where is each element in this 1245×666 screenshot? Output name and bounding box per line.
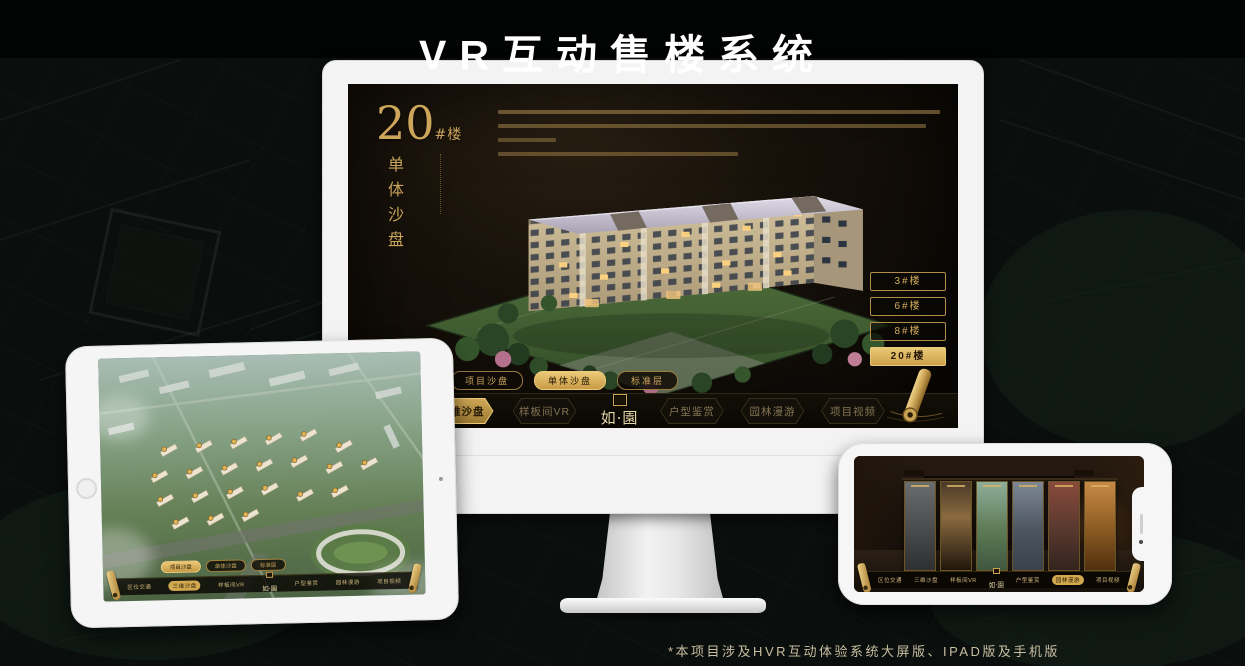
scene-panel[interactable] (1084, 481, 1116, 571)
speaker-icon (1140, 514, 1143, 534)
nav-item-garden-roam[interactable]: 园林漫游 (336, 578, 360, 587)
nav-item-project-video[interactable]: 项目视频 (377, 577, 401, 586)
monitor-stand (596, 512, 724, 602)
sub-tab-project-sandtable[interactable]: 项目沙盘 (451, 371, 523, 390)
page-title: VR互动售楼系统 (0, 27, 1245, 85)
nav-item-garden-roam[interactable]: 园林漫游 (745, 398, 799, 424)
sub-tab-single-sandtable[interactable]: 单体沙盘 (534, 371, 606, 390)
footnote-caption: *本项目涉及HVR互动体验系统大屏版、IPAD版及手机版 (668, 641, 1060, 660)
nav-item-project-video[interactable]: 项目视频 (826, 398, 880, 424)
logo-seal-icon (993, 568, 1000, 574)
floor-button-group: 3#楼 6#楼 8#楼 20#楼 (870, 266, 946, 366)
ipad-screen: 项目沙盘 单体沙盘 标准层 区位交通 三维沙盘 样板间VR 如·園 户型鉴赏 园… (98, 351, 425, 601)
screen-subtitle-vertical: 单体沙盘 (382, 156, 406, 286)
pavilion-beam (924, 456, 1074, 479)
nav-item-unit-gallery[interactable]: 户型鉴赏 (1016, 576, 1040, 584)
floor-button-6[interactable]: 6#楼 (870, 297, 946, 316)
app-logo[interactable]: 如·園 (989, 568, 1004, 592)
nav-item-project-video[interactable]: 项目视频 (1096, 576, 1120, 584)
smartphone-device: 区位交通 三维沙盘 样板间VR 如·園 户型鉴赏 园林漫游 项目视频 (838, 443, 1172, 605)
sub-tab-single-sandtable[interactable]: 单体沙盘 (206, 559, 246, 572)
floor-button-3[interactable]: 3#楼 (870, 272, 946, 291)
nav-item-unit-gallery[interactable]: 户型鉴赏 (665, 398, 719, 424)
monitor-base (560, 598, 766, 613)
nav-item-showroom-vr[interactable]: 样板间VR (515, 398, 574, 424)
phone-screen: 区位交通 三维沙盘 样板间VR 如·園 户型鉴赏 园林漫游 项目视频 (854, 456, 1144, 592)
ipad-home-button[interactable] (76, 478, 97, 499)
phone-nav-bar: 区位交通 三维沙盘 样板间VR 如·園 户型鉴赏 园林漫游 项目视频 (862, 571, 1136, 588)
front-camera-icon (1139, 540, 1143, 544)
sub-tab-standard-floor[interactable]: 标准层 (617, 371, 678, 390)
building-model-render[interactable] (406, 140, 906, 401)
nav-item-unit-gallery[interactable]: 户型鉴赏 (294, 579, 318, 588)
sub-tab-standard-floor[interactable]: 标准层 (251, 558, 286, 571)
scene-panel[interactable] (940, 481, 972, 571)
scene-panel[interactable] (976, 481, 1008, 571)
ipad-device: 项目沙盘 单体沙盘 标准层 区位交通 三维沙盘 样板间VR 如·園 户型鉴赏 园… (65, 338, 459, 629)
panel-rail (902, 478, 1118, 480)
nav-item-location[interactable]: 区位交通 (878, 576, 902, 584)
nav-item-showroom-vr[interactable]: 样板间VR (218, 580, 245, 589)
logo-seal-icon (266, 572, 273, 578)
gold-scroll-icon[interactable] (882, 364, 952, 428)
sub-tab-bar: 项目沙盘 单体沙盘 标准层 (451, 371, 678, 390)
front-camera-icon (439, 477, 443, 481)
nav-item-3d-sandtable[interactable]: 三维沙盘 (169, 580, 201, 591)
logo-seal-icon (613, 394, 627, 406)
scene-panel[interactable] (904, 481, 936, 571)
nav-item-3d-sandtable[interactable]: 三维沙盘 (914, 576, 938, 584)
app-logo[interactable]: 如·園 (601, 394, 639, 428)
nav-item-location[interactable]: 区位交通 (127, 583, 151, 592)
nav-item-garden-roam[interactable]: 园林漫游 (1052, 575, 1084, 585)
poster-canvas: VR互动售楼系统 20#楼 单体沙盘 (0, 0, 1245, 666)
sub-tab-project-sandtable[interactable]: 项目沙盘 (161, 560, 201, 573)
nav-item-showroom-vr[interactable]: 样板间VR (950, 576, 977, 584)
floor-button-8[interactable]: 8#楼 (870, 322, 946, 341)
scene-panel[interactable] (1048, 481, 1080, 571)
text-line (498, 124, 926, 128)
scene-panel[interactable] (1012, 481, 1044, 571)
phone-notch (1132, 487, 1148, 561)
app-logo[interactable]: 如·園 (262, 572, 278, 596)
text-line (498, 110, 940, 114)
